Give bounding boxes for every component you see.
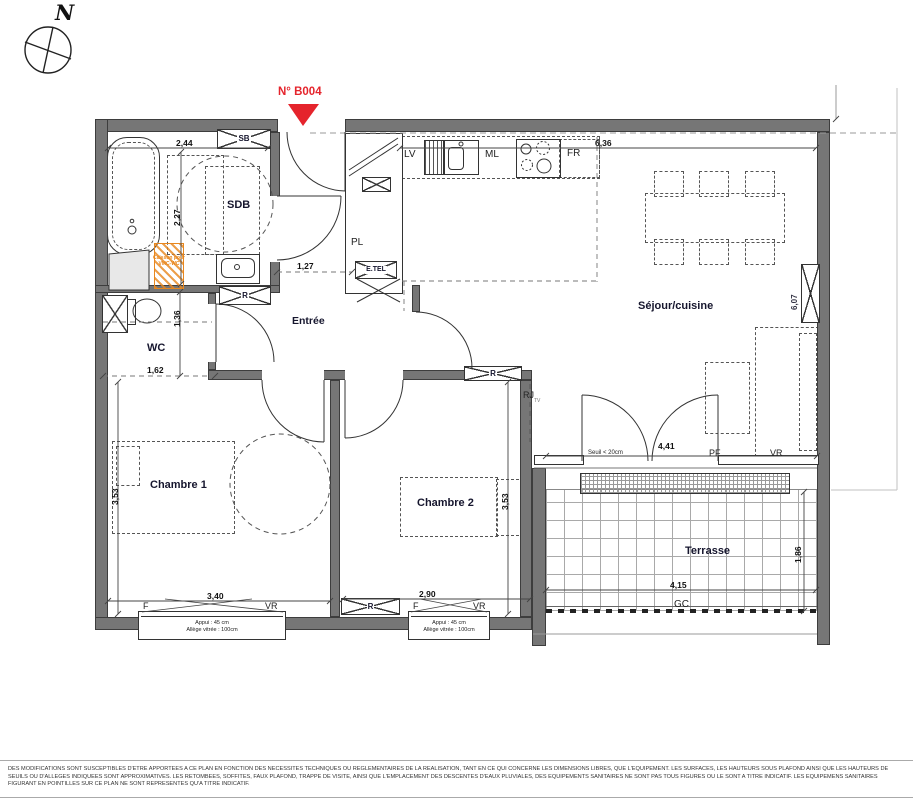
footer-divider-bottom <box>0 797 913 798</box>
chair <box>654 171 684 197</box>
dim-terrasse-width: 4,15 <box>670 580 687 590</box>
entrance-marker-icon <box>288 104 319 126</box>
radiator-label: R <box>367 603 375 611</box>
glazing-left <box>534 455 584 465</box>
window-glass <box>411 616 487 617</box>
wall-chambre1-chambre2 <box>330 380 340 617</box>
label-pf: PF <box>709 448 721 458</box>
dim-wc-width: 1,62 <box>147 365 164 375</box>
footer-divider-top <box>0 760 913 761</box>
window-chambre1: Appui : 45 cm Allège vitrée : 100cm <box>138 611 286 640</box>
window-chambre2: Appui : 45 cm Allège vitrée : 100cm <box>408 611 490 640</box>
wall-chambre2-sejour <box>520 380 532 617</box>
terrace-grating <box>580 473 790 494</box>
room-label-sejour: Séjour/cuisine <box>638 300 713 312</box>
room-label-chambre1: Chambre 1 <box>150 479 207 491</box>
wall-terrace-left <box>532 468 546 646</box>
duct-shaft-wc <box>102 295 128 333</box>
towel-dryer-box: SB <box>217 129 271 149</box>
door-opening-chambre1 <box>262 370 324 380</box>
chair <box>745 171 775 197</box>
label-pl: PL <box>351 237 363 248</box>
chair <box>745 239 775 265</box>
dim-chambre2-height: 3,53 <box>500 493 510 510</box>
vmc-duct-label-line2: VMC-WC <box>158 261 179 267</box>
label-seuil: Seuil < 20cm <box>588 450 623 456</box>
dim-sdb-width: 2,44 <box>176 138 193 148</box>
room-label-wc: WC <box>147 342 165 354</box>
terrace-tiles <box>546 489 817 611</box>
door-swings <box>216 132 718 461</box>
wall-left <box>95 119 108 630</box>
radiator-label: R <box>241 292 249 300</box>
label-f-chambre1: F <box>143 601 149 611</box>
room-label-chambre2: Chambre 2 <box>417 497 474 509</box>
sofa-back <box>799 333 817 451</box>
radiator-sdb: R <box>219 286 271 305</box>
dim-chambre2-width: 2,90 <box>419 589 436 599</box>
chair <box>699 239 729 265</box>
dishwasher <box>424 140 444 175</box>
label-ml: ML <box>485 149 499 160</box>
footer-disclaimer: DES MODIFICATIONS SONT SUSCEPTIBLES D'ET… <box>8 766 905 789</box>
door-opening-wc <box>208 304 216 362</box>
dim-terrasse-height: 1,86 <box>793 546 803 563</box>
towel-dryer-label: SB <box>237 135 250 143</box>
label-rj-sub: TV <box>534 398 540 404</box>
wall-top-right <box>345 119 830 132</box>
glazing-right <box>718 455 819 465</box>
kitchen-sink-bowl <box>448 147 464 170</box>
closet-vent-box <box>362 177 391 192</box>
coffee-table <box>705 362 750 434</box>
door-opening-sdb <box>270 196 280 262</box>
wall-right <box>817 132 830 645</box>
compass-north-label: N <box>55 0 74 25</box>
electrical-panel-box: E.TEL <box>355 261 397 279</box>
vmc-duct-label: Caisson pour VMC-WC <box>140 255 198 267</box>
washbasin-bowl <box>221 258 255 278</box>
label-fr: FR <box>567 148 580 159</box>
window-allege-label: Allège vitrée : 100cm <box>409 627 489 634</box>
dim-sejour-height: 6,07 <box>790 294 799 310</box>
floor-plan: N N° B004 E.TEL SB R R R <box>0 0 913 800</box>
electrical-panel-label: E.TEL <box>365 266 387 274</box>
unit-number-label: N° B004 <box>278 86 322 98</box>
duct-shaft-sejour <box>801 264 820 323</box>
dim-entree-width: 1,27 <box>297 261 314 271</box>
door-opening-chambre2 <box>345 370 403 380</box>
compass-icon <box>25 27 71 73</box>
room-label-terrasse: Terrasse <box>685 545 730 557</box>
radiator-label: R <box>489 370 497 378</box>
label-gc: GC <box>674 599 689 610</box>
radiator-hall: R <box>464 366 522 381</box>
wall-stub-sejour <box>412 285 420 312</box>
label-vr-chambre2: VR <box>473 601 486 611</box>
dining-table <box>645 193 785 243</box>
label-rj: RJ <box>523 390 534 400</box>
radiator-chambre2: R <box>341 598 400 615</box>
chair <box>654 239 684 265</box>
dim-sejour-width: 6,36 <box>595 138 612 148</box>
label-vr-baie: VR <box>770 448 783 458</box>
cooktop <box>516 139 561 178</box>
pillow-chambre1 <box>116 446 140 486</box>
room-label-entree: Entrée <box>292 315 325 327</box>
window-glass <box>141 616 283 617</box>
dim-baie-width: 4,41 <box>658 441 675 451</box>
room-label-sdb: SDB <box>227 199 250 211</box>
dim-sdb-height: 2,27 <box>172 209 182 226</box>
label-lv: LV <box>404 149 416 160</box>
dim-wc-height: 1,36 <box>172 310 182 327</box>
dim-chambre1-width: 3,40 <box>207 591 224 601</box>
chair <box>699 171 729 197</box>
window-allege-label: Allège vitrée : 100cm <box>139 627 285 634</box>
label-f-chambre2: F <box>413 601 419 611</box>
bathtub-inner <box>112 142 155 250</box>
dim-chambre1-height: 3,53 <box>110 488 120 505</box>
label-vr-chambre1: VR <box>265 601 278 611</box>
